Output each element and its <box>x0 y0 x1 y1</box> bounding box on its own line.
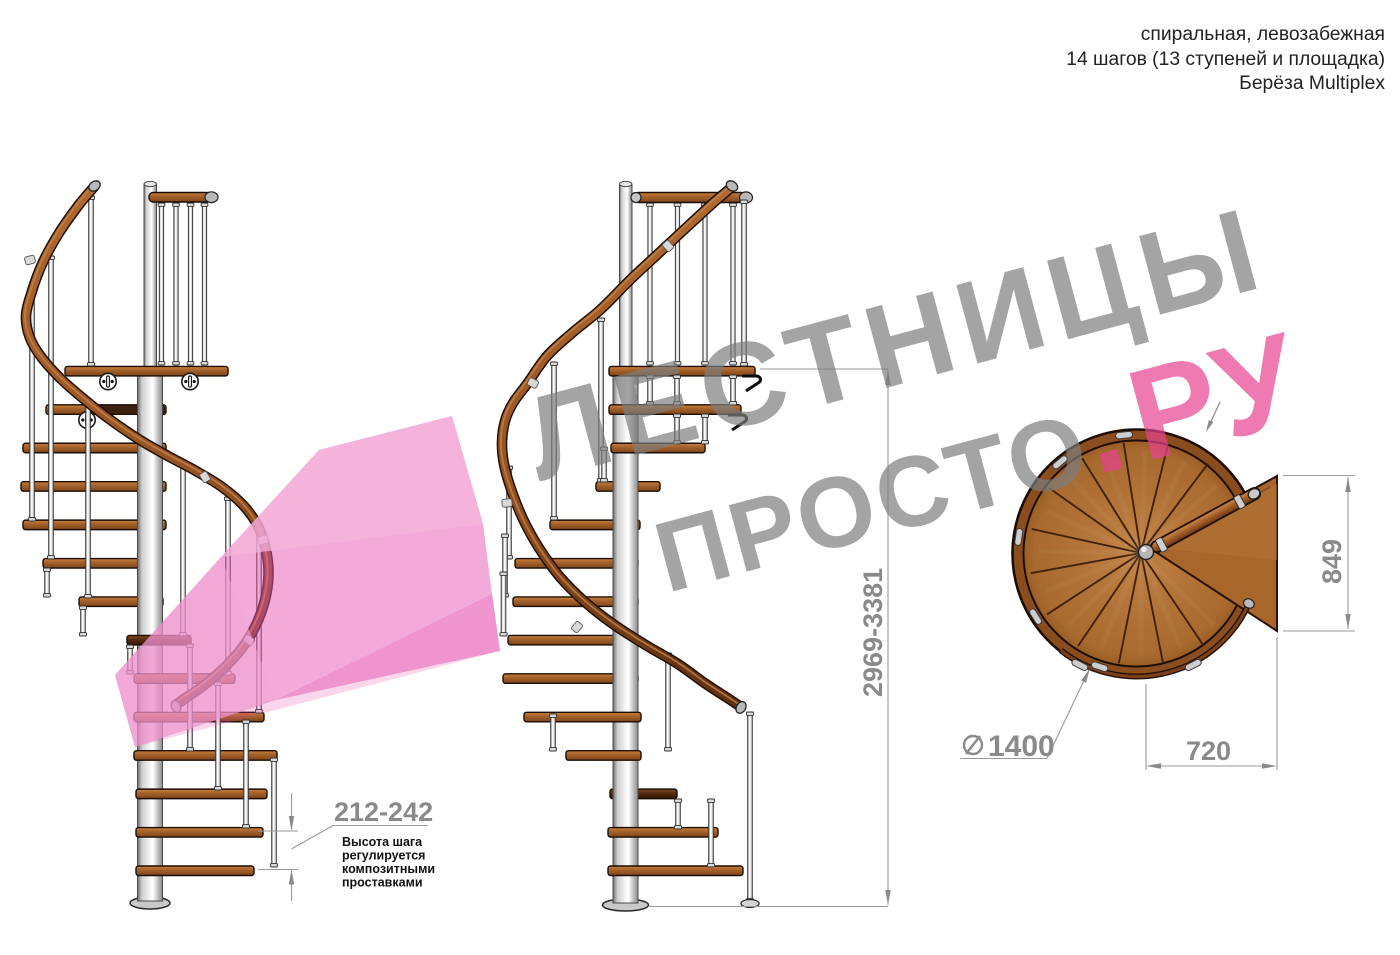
svg-text:212-242: 212-242 <box>334 797 433 827</box>
svg-text:2969-3381: 2969-3381 <box>858 568 888 697</box>
svg-text:1400: 1400 <box>988 730 1055 763</box>
svg-text:композитными: композитными <box>342 862 435 876</box>
svg-text:проставками: проставками <box>342 876 423 890</box>
svg-text:720: 720 <box>1186 736 1231 766</box>
svg-text:Высота шага: Высота шага <box>342 835 423 849</box>
svg-text:849: 849 <box>1317 539 1347 584</box>
svg-text:регулируется: регулируется <box>342 849 425 863</box>
